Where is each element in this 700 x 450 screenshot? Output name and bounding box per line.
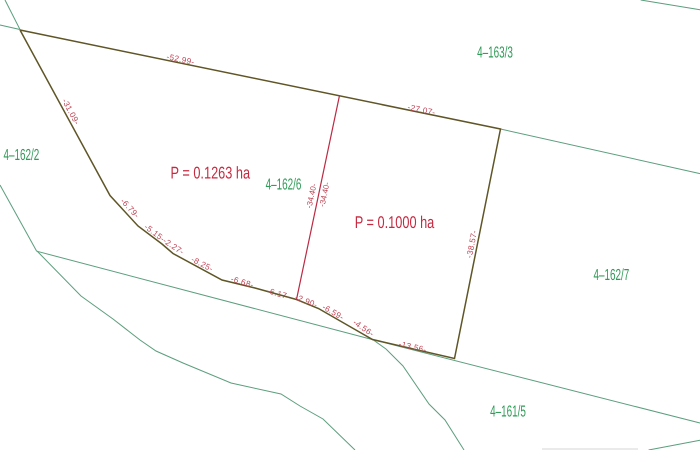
svg-text:P = 0.1263 ha: P = 0.1263 ha [171,164,251,183]
svg-text:4–162/7: 4–162/7 [593,267,629,284]
svg-text:4–161/5: 4–161/5 [490,404,526,421]
svg-text:P = 0.1000 ha: P = 0.1000 ha [355,213,435,232]
svg-text:4–162/6: 4–162/6 [266,177,302,194]
svg-text:4–163/3: 4–163/3 [477,45,513,62]
svg-text:4–162/2: 4–162/2 [3,147,39,164]
